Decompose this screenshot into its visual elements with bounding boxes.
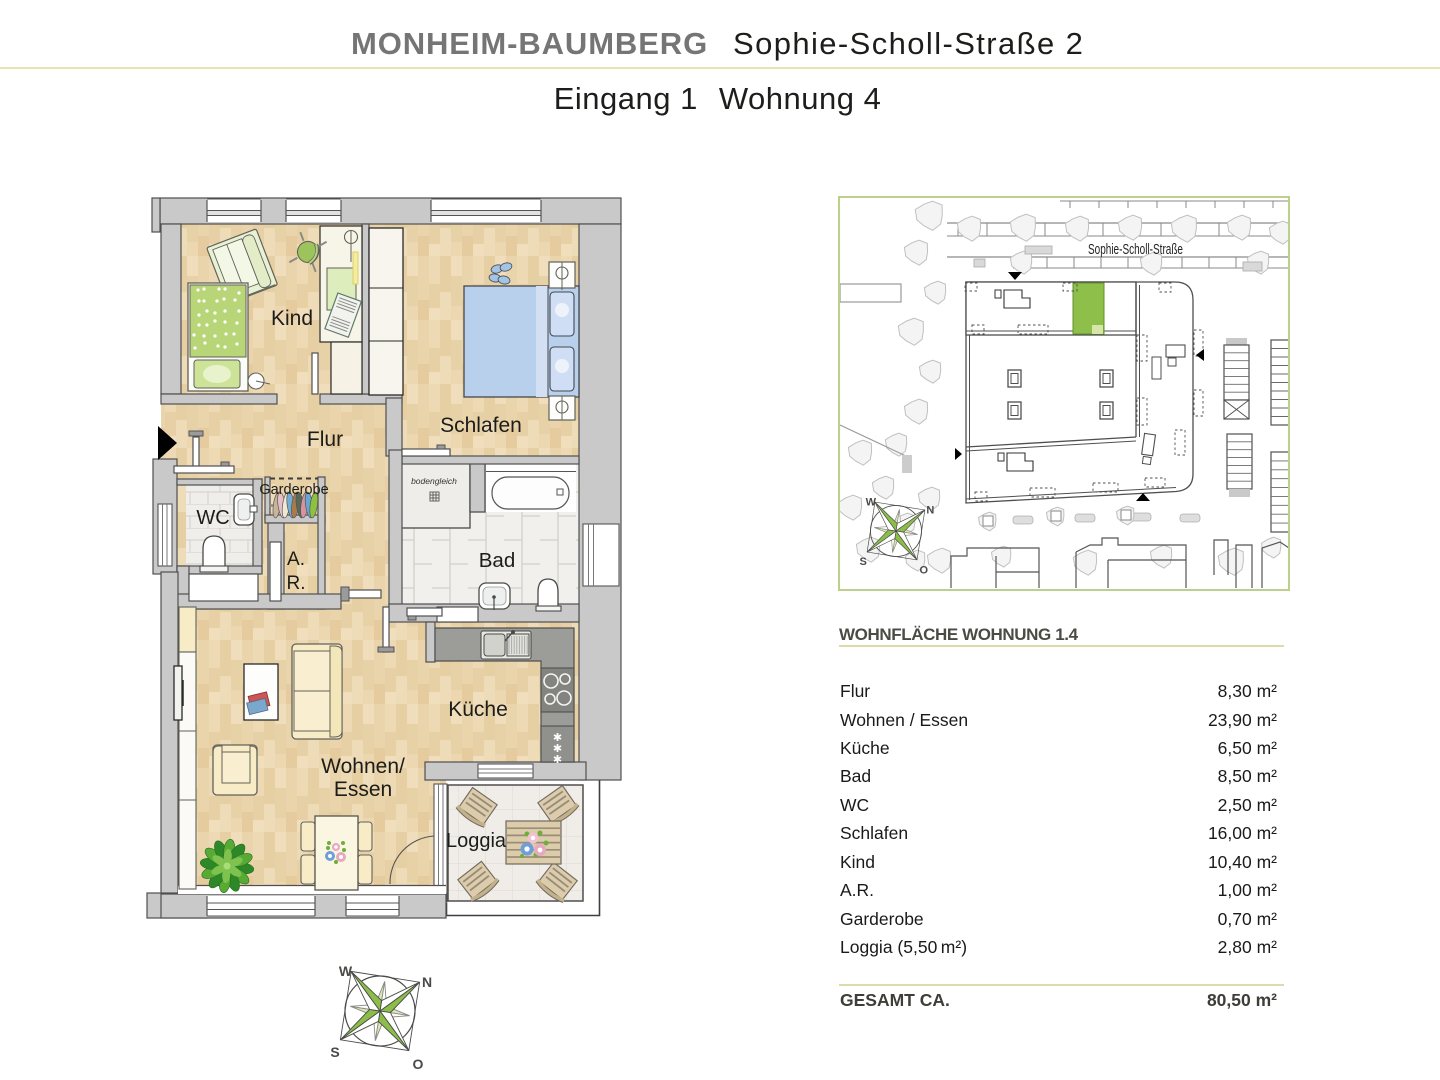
svg-text:W: W (866, 497, 877, 509)
svg-text:Essen: Essen (334, 778, 392, 801)
svg-text:W: W (339, 963, 353, 979)
svg-text:Bad: Bad (479, 549, 515, 572)
svg-text:Schlafen: Schlafen (440, 414, 522, 437)
svg-text:O: O (413, 1056, 424, 1072)
svg-text:R.: R. (287, 573, 306, 594)
svg-text:Wohnen/: Wohnen/ (321, 755, 405, 778)
svg-text:N: N (422, 974, 432, 990)
svg-text:Loggia: Loggia (446, 830, 507, 852)
svg-text:WC: WC (196, 507, 229, 529)
svg-text:A.: A. (287, 549, 305, 570)
svg-text:S: S (859, 556, 866, 568)
svg-text:Sophie-Scholl-Straße: Sophie-Scholl-Straße (1088, 242, 1183, 258)
svg-text:✱: ✱ (553, 754, 562, 766)
svg-text:bodengleich: bodengleich (411, 476, 457, 486)
svg-text:O: O (919, 565, 928, 577)
svg-text:S: S (330, 1044, 339, 1060)
svg-text:Kind: Kind (271, 307, 313, 330)
svg-text:Küche: Küche (448, 698, 508, 721)
svg-text:Garderobe: Garderobe (259, 482, 328, 498)
svg-text:Flur: Flur (307, 428, 343, 451)
svg-text:N: N (926, 505, 934, 517)
